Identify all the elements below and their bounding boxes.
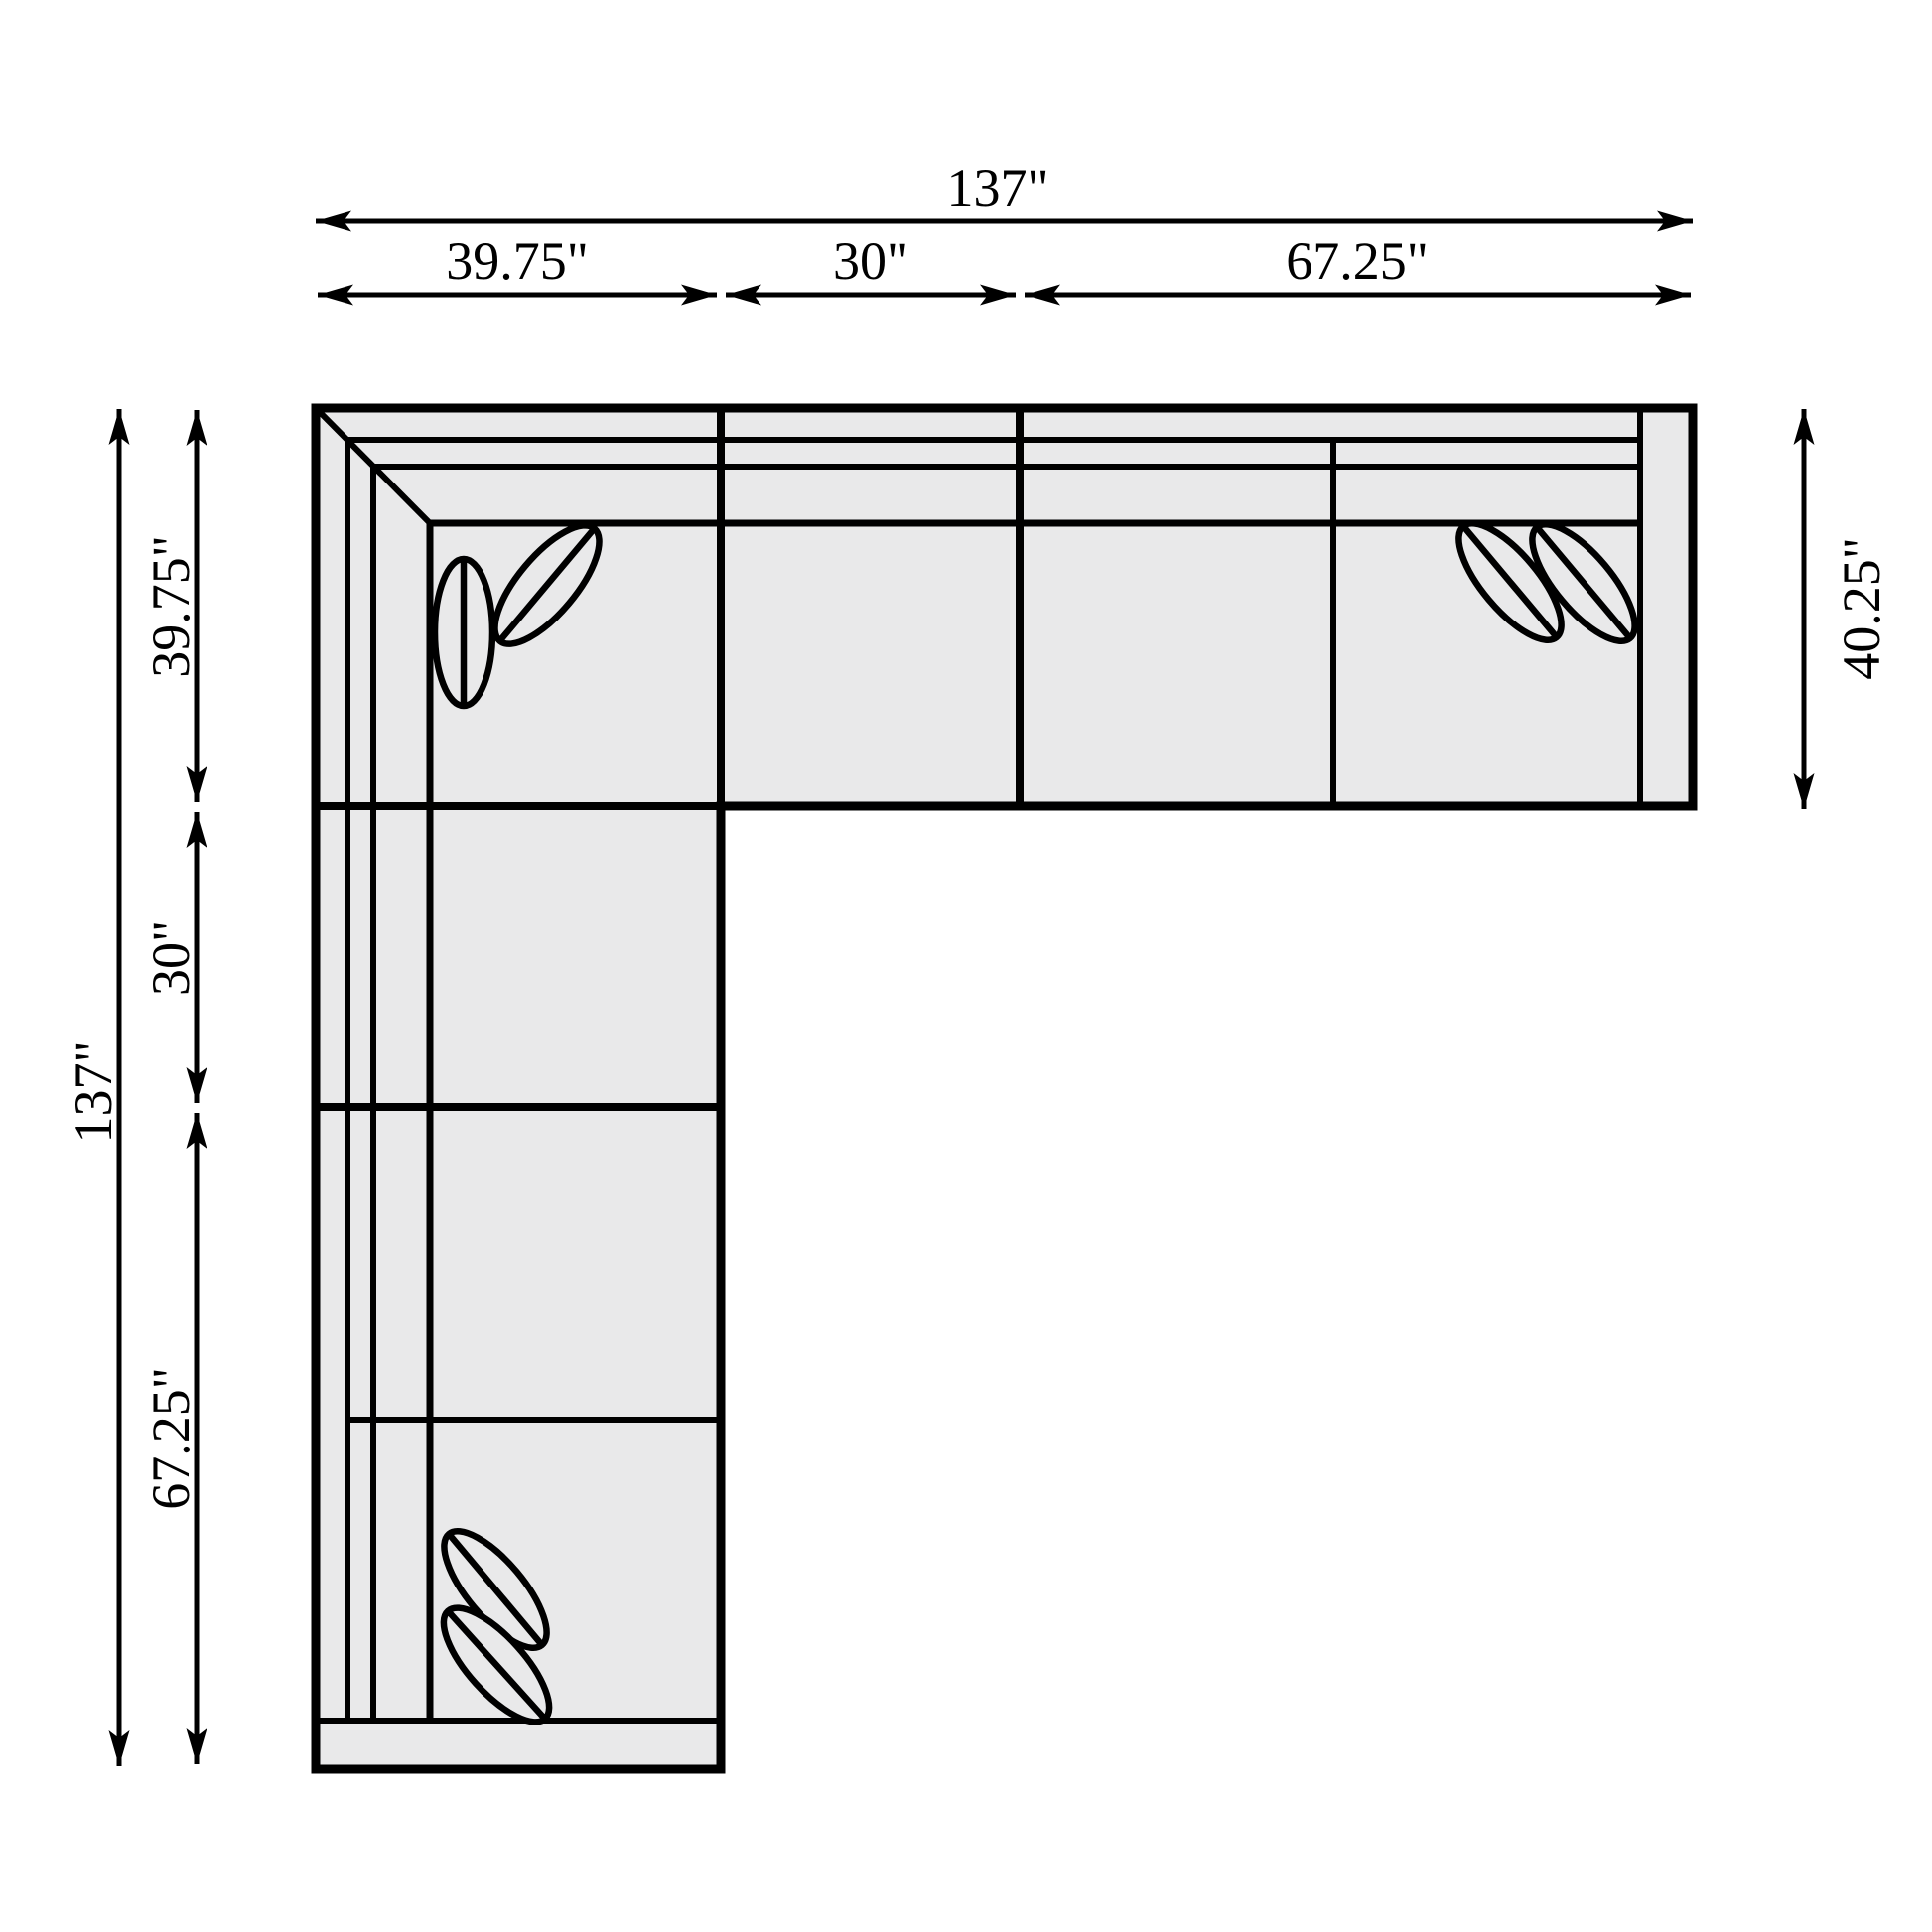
- dim-label-left-total: 137": [64, 1040, 123, 1143]
- dim-label-top-total: 137": [946, 158, 1048, 217]
- dim-label-top-seg3: 67.25": [1286, 231, 1429, 291]
- dim-label-top-seg2: 30": [833, 231, 908, 291]
- dim-label-right-depth: 40.25": [1832, 537, 1891, 680]
- sofa-dimension-diagram: 137" 39.75" 30" 67.25" 137" 39.75" 30" 6…: [0, 0, 1932, 1932]
- dim-label-top-seg1: 39.75": [446, 231, 589, 291]
- dim-label-left-seg3: 67.25": [141, 1367, 201, 1510]
- dim-label-left-seg1: 39.75": [141, 535, 201, 678]
- diagram-canvas: 137" 39.75" 30" 67.25" 137" 39.75" 30" 6…: [0, 0, 1932, 1932]
- corner-pillow-vertical: [435, 559, 492, 706]
- dim-label-left-seg2: 30": [141, 920, 201, 996]
